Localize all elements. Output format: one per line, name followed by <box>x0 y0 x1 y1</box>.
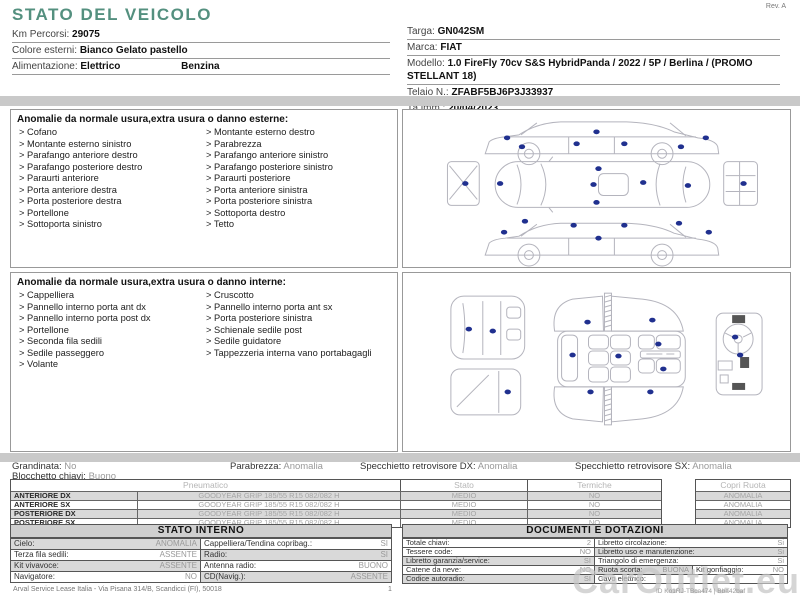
stato-interno-table: STATO INTERNO Cielo:ANOMALIA Cappelliera… <box>10 524 392 583</box>
anomaly-item: Porta posteriore destra <box>19 196 206 208</box>
table-row: Totale chiavi:2 Libretto circolazione:Si <box>403 538 787 547</box>
anomaly-item: Porta anteriore destra <box>19 185 206 197</box>
table-row: Terza fila sedili:ASSENTE Radio:SI <box>11 549 391 560</box>
anomaly-item: Seconda fila sedili <box>19 336 206 348</box>
km-value: 29075 <box>72 29 100 40</box>
page-number: 1 <box>388 586 392 593</box>
info-row-alimentazione: Alimentazione: Elettrico Benzina <box>12 59 390 75</box>
terza-fila-label: Terza fila sedili: <box>14 550 69 560</box>
separator-band-top <box>0 96 800 106</box>
tire-row: ANTERIORE DX GOODYEAR GRIP 185/55 R15 08… <box>11 491 661 500</box>
libretto-uso-label: Libretto uso e manutenzione: <box>598 548 695 556</box>
km-label: Km Percorsi: <box>12 29 69 40</box>
exterior-car-diagram-svg <box>403 110 790 267</box>
anomaly-item: Parafango anteriore sinistro <box>206 150 393 162</box>
exterior-damage-diagram <box>402 109 791 268</box>
damage-marker <box>519 144 525 149</box>
tire-stato: MEDIO <box>401 510 528 518</box>
cielo-label: Cielo: <box>14 539 34 549</box>
header-stato: Stato <box>401 480 528 491</box>
damage-marker <box>462 181 468 186</box>
targa-value: GN042SM <box>438 26 485 37</box>
anomaly-item: Paraurti anteriore <box>19 173 206 185</box>
anomaly-item: Cappelliera <box>19 290 206 302</box>
damage-marker <box>621 141 627 146</box>
alimentazione-label: Alimentazione: <box>12 61 78 72</box>
copri-value: ANOMALIA <box>696 509 790 518</box>
damage-marker <box>615 354 621 359</box>
anomaly-item: Schienale sedile post <box>206 325 393 337</box>
status-specchietto-dx: Specchietto retrovisore DX: Anomalia <box>360 461 517 472</box>
header-copri-ruota: Copri Ruota <box>696 480 790 491</box>
interior-damage-diagram <box>402 272 791 452</box>
marca-label: Marca: <box>407 42 438 53</box>
damage-marker <box>676 221 682 226</box>
anomaly-item: Pannello interno porta post dx <box>19 313 206 325</box>
alimentazione-value-1: Elettrico <box>80 61 120 72</box>
tire-termiche: NO <box>528 492 661 500</box>
damage-marker <box>660 367 666 372</box>
info-row-km: Km Percorsi: 29075 <box>12 27 390 43</box>
parabrezza-value: Anomalia <box>283 461 323 472</box>
cappelliera-value: SI <box>376 539 388 549</box>
anomaly-item: Tetto <box>206 219 393 231</box>
tire-rows: ANTERIORE DX GOODYEAR GRIP 185/55 R15 08… <box>11 491 661 527</box>
anomaly-item: Sottoporta destro <box>206 208 393 220</box>
modello-value: 1.0 FireFly 70cv S&S HybridPanda / 2022 … <box>407 58 753 82</box>
libretto-garanzia-label: Libretto garanzia/service: <box>406 557 490 565</box>
documenti-header: DOCUMENTI E DOTAZIONI <box>403 525 787 538</box>
tessere-code-label: Tessere code: <box>406 548 453 556</box>
damage-marker <box>647 390 653 395</box>
info-row-marca: Marca: FIAT <box>407 40 780 56</box>
damage-marker <box>466 327 472 332</box>
status-parabrezza: Parabrezza: Anomalia <box>230 461 323 472</box>
copri-rows: ANOMALIAANOMALIAANOMALIAANOMALIA <box>696 491 790 527</box>
damage-marker <box>587 390 593 395</box>
anomaly-item: Pannello interno porta ant sx <box>206 302 393 314</box>
anomaly-item: Pannello interno porta ant dx <box>19 302 206 314</box>
anomaly-item: Porta anteriore sinistra <box>206 185 393 197</box>
antenna-label: Antenna radio: <box>204 561 256 571</box>
damage-marker <box>593 129 599 134</box>
anomaly-item: Montante esterno destro <box>206 127 393 139</box>
damage-marker <box>593 200 599 205</box>
status-specchietto-sx: Specchietto retrovisore SX: Anomalia <box>575 461 732 472</box>
tire-stato: MEDIO <box>401 492 528 500</box>
damage-marker <box>573 141 579 146</box>
exterior-anomalies-col2: Montante esterno destroParabrezzaParafan… <box>206 127 393 231</box>
anomaly-item: Sedile guidatore <box>206 336 393 348</box>
parabrezza-label: Parabrezza: <box>230 461 281 472</box>
info-row-colore: Colore esterni: Bianco Gelato pastello <box>12 43 390 59</box>
damage-marker <box>569 353 575 358</box>
anomaly-item: Cruscotto <box>206 290 393 302</box>
tire-termiche: NO <box>528 510 661 518</box>
header-termiche: Termiche <box>528 480 661 491</box>
exterior-anomalies-col1: CofanoMontante esterno sinistroParafango… <box>19 127 206 231</box>
tire-stato: MEDIO <box>401 501 528 509</box>
anomaly-item: Tappezzeria interna vano portabagagli <box>206 348 393 360</box>
table-row: Navigatore:NO CD(Navig.):ASSENTE <box>11 571 391 582</box>
anomaly-item: Montante esterno sinistro <box>19 139 206 151</box>
footer-company-address: Arval Service Lease Italia - Via Pisana … <box>13 586 222 593</box>
damage-marker <box>621 223 627 228</box>
header-pneumatico: Pneumatico <box>11 480 401 491</box>
damage-marker <box>505 390 511 395</box>
anomaly-item: Portellone <box>19 325 206 337</box>
interior-anomalies-title: Anomalie da normale usura,extra usura o … <box>11 273 397 290</box>
catene-neve-label: Catene da neve: <box>406 566 461 574</box>
damage-marker <box>678 144 684 149</box>
damage-marker <box>570 223 576 228</box>
interior-car-diagram-svg <box>403 273 790 451</box>
damage-marker <box>640 180 646 185</box>
info-row-modello: Modello: 1.0 FireFly 70cv S&S HybridPand… <box>407 56 780 85</box>
modello-label: Modello: <box>407 58 445 69</box>
tire-spec: GOODYEAR GRIP 185/55 R15 082/082 H <box>138 492 401 500</box>
navigatore-label: Navigatore: <box>14 572 55 582</box>
page-title: STATO DEL VEICOLO <box>12 5 212 25</box>
anomaly-item: Sottoporta sinistro <box>19 219 206 231</box>
codice-autoradio-label: Codice autoradio: <box>406 575 465 583</box>
anomaly-item: Portellone <box>19 208 206 220</box>
tire-row: POSTERIORE DX GOODYEAR GRIP 185/55 R15 0… <box>11 509 661 518</box>
damage-marker <box>706 230 712 235</box>
specchietto-dx-label: Specchietto retrovisore DX: <box>360 461 476 472</box>
totale-chiavi-label: Totale chiavi: <box>406 539 449 547</box>
tire-position: POSTERIORE DX <box>11 510 138 518</box>
exterior-anomalies-box: Anomalie da normale usura,extra usura o … <box>10 109 398 268</box>
damage-marker <box>685 183 691 188</box>
terza-fila-value: ASSENTE <box>156 550 197 560</box>
damage-marker <box>732 335 738 340</box>
specchietto-dx-value: Anomalia <box>478 461 518 472</box>
damage-marker <box>501 230 507 235</box>
tire-spec: GOODYEAR GRIP 185/55 R15 082/082 H <box>138 510 401 518</box>
colore-value: Bianco Gelato pastello <box>80 45 188 56</box>
anomaly-item: Parafango posteriore destro <box>19 162 206 174</box>
interior-anomalies-box: Anomalie da normale usura,extra usura o … <box>10 272 398 452</box>
damage-marker <box>584 320 590 325</box>
cielo-value: ANOMALIA <box>152 539 197 549</box>
tire-position: ANTERIORE SX <box>11 501 138 509</box>
specchietto-sx-value: Anomalia <box>692 461 732 472</box>
specchietto-sx-label: Specchietto retrovisore SX: <box>575 461 690 472</box>
anomaly-item: Paraurti posteriore <box>206 173 393 185</box>
radio-value: SI <box>376 550 388 560</box>
damage-marker <box>590 182 596 187</box>
radio-label: Radio: <box>204 550 227 560</box>
anomaly-item: Sedile passeggero <box>19 348 206 360</box>
info-row-targa: Targa: GN042SM <box>407 24 780 40</box>
anomaly-item: Parabrezza <box>206 139 393 151</box>
copri-value: ANOMALIA <box>696 500 790 509</box>
damage-marker <box>490 329 496 334</box>
anomaly-item: Parafango anteriore destro <box>19 150 206 162</box>
table-row: Kit vivavoce:ASSENTE Antenna radio:BUONO <box>11 560 391 571</box>
damage-marker <box>703 135 709 140</box>
damage-marker <box>595 236 601 241</box>
alimentazione-value-2: Benzina <box>181 61 219 72</box>
anomaly-item: Parafango posteriore sinistro <box>206 162 393 174</box>
damage-marker <box>504 135 510 140</box>
damage-marker <box>595 166 601 171</box>
colore-label: Colore esterni: <box>12 45 77 56</box>
exterior-anomalies-title: Anomalie da normale usura,extra usura o … <box>11 110 397 127</box>
libretto-circolazione-value: Si <box>773 539 784 547</box>
tire-spec: GOODYEAR GRIP 185/55 R15 082/082 H <box>138 501 401 509</box>
anomaly-item: Volante <box>19 359 206 371</box>
libretto-uso-value: Si <box>773 548 784 556</box>
targa-label: Targa: <box>407 26 435 37</box>
antenna-value: BUONO <box>355 561 388 571</box>
vehicle-condition-report: STATO DEL VEICOLO Rev. A Km Percorsi: 29… <box>0 0 800 600</box>
cd-navig-value: ASSENTE <box>347 572 388 582</box>
stato-interno-header: STATO INTERNO <box>11 525 391 538</box>
tire-termiche: NO <box>528 501 661 509</box>
table-row: Tessere code:NO Libretto uso e manutenzi… <box>403 547 787 556</box>
damage-marker <box>649 318 655 323</box>
libretto-circolazione-label: Libretto circolazione: <box>598 539 667 547</box>
anomaly-item: Porta posteriore sinistra <box>206 196 393 208</box>
tire-table: Pneumatico Stato Termiche ANTERIORE DX G… <box>10 479 662 528</box>
cd-navig-label: CD(Navig.): <box>204 572 246 582</box>
copri-value: ANOMALIA <box>696 491 790 500</box>
vehicle-info-left: Km Percorsi: 29075 Colore esterni: Bianc… <box>12 27 390 75</box>
anomaly-item: Porta posteriore sinistra <box>206 313 393 325</box>
interior-anomalies-col2: CruscottoPannello interno porta ant sxPo… <box>206 290 393 371</box>
cappelliera-label: Cappelliera/Tendina copribag.: <box>204 539 312 549</box>
navigatore-value: NO <box>181 572 197 582</box>
totale-chiavi-value: 2 <box>583 539 591 547</box>
damage-marker <box>522 219 528 224</box>
kit-vivavoce-value: ASSENTE <box>156 561 197 571</box>
table-row: Cielo:ANOMALIA Cappelliera/Tendina copri… <box>11 538 391 549</box>
tire-row: ANTERIORE SX GOODYEAR GRIP 185/55 R15 08… <box>11 500 661 509</box>
tire-table-header: Pneumatico Stato Termiche <box>11 480 661 491</box>
damage-marker <box>655 342 661 347</box>
interior-anomalies-col1: CappellieraPannello interno porta ant dx… <box>19 290 206 371</box>
copri-ruota-table: Copri Ruota ANOMALIAANOMALIAANOMALIAANOM… <box>695 479 791 528</box>
damage-marker <box>737 353 743 358</box>
damage-marker <box>497 181 503 186</box>
marca-value: FIAT <box>440 42 461 53</box>
kit-vivavoce-label: Kit vivavoce: <box>14 561 59 571</box>
anomaly-item: Cofano <box>19 127 206 139</box>
tire-position: ANTERIORE DX <box>11 492 138 500</box>
document-id: ID Ko1RJ-TBca474 | Bba42baf <box>656 588 745 595</box>
tessere-code-value: NO <box>576 548 591 556</box>
revision-label: Rev. A <box>766 3 786 10</box>
damage-marker <box>740 181 746 186</box>
